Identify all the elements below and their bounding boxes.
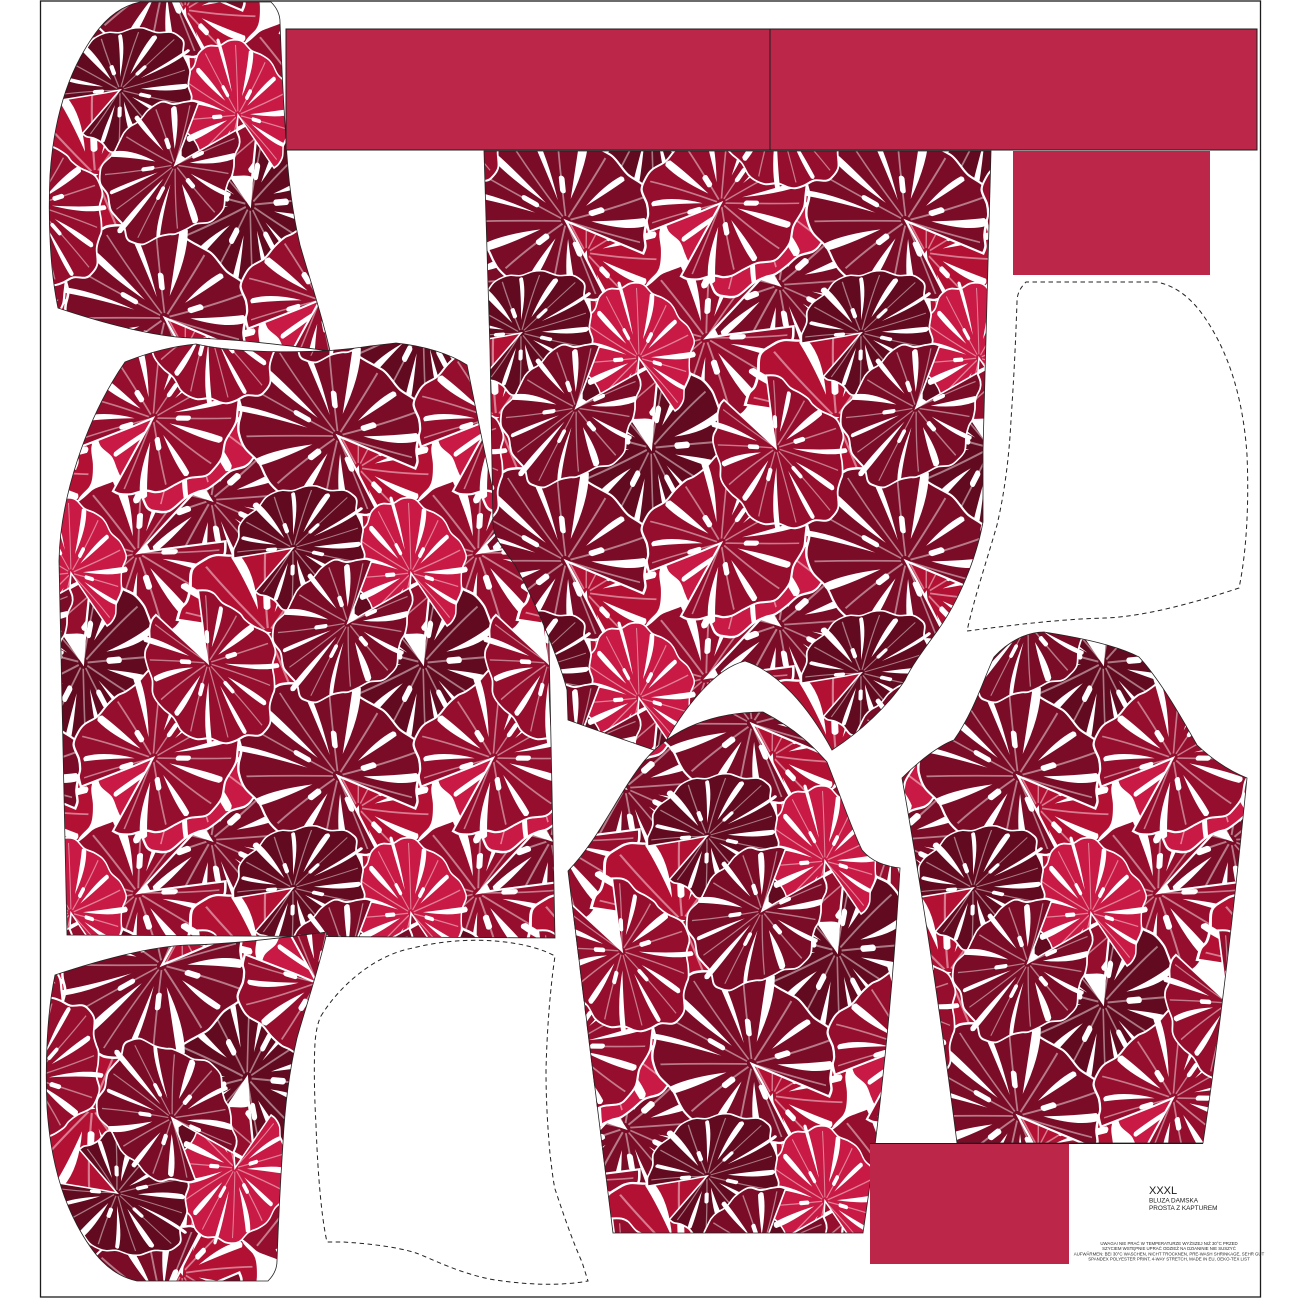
svg-text:SZYCIEM WSTĘPNIE UPRAĆ ODZIEŻ: SZYCIEM WSTĘPNIE UPRAĆ ODZIEŻ NA DZIANIN…: [1102, 1246, 1236, 1251]
svg-text:PROSTA Z KAPTUREM: PROSTA Z KAPTUREM: [1149, 1205, 1217, 1212]
svg-text:XXXL: XXXL: [1149, 1185, 1177, 1197]
svg-text:BLUZA DAMSKA: BLUZA DAMSKA: [1149, 1198, 1199, 1205]
svg-text:SPANDEX POLYESTER PRINT, 4-WAY: SPANDEX POLYESTER PRINT, 4-WAY STRETCH, …: [1088, 1257, 1250, 1262]
